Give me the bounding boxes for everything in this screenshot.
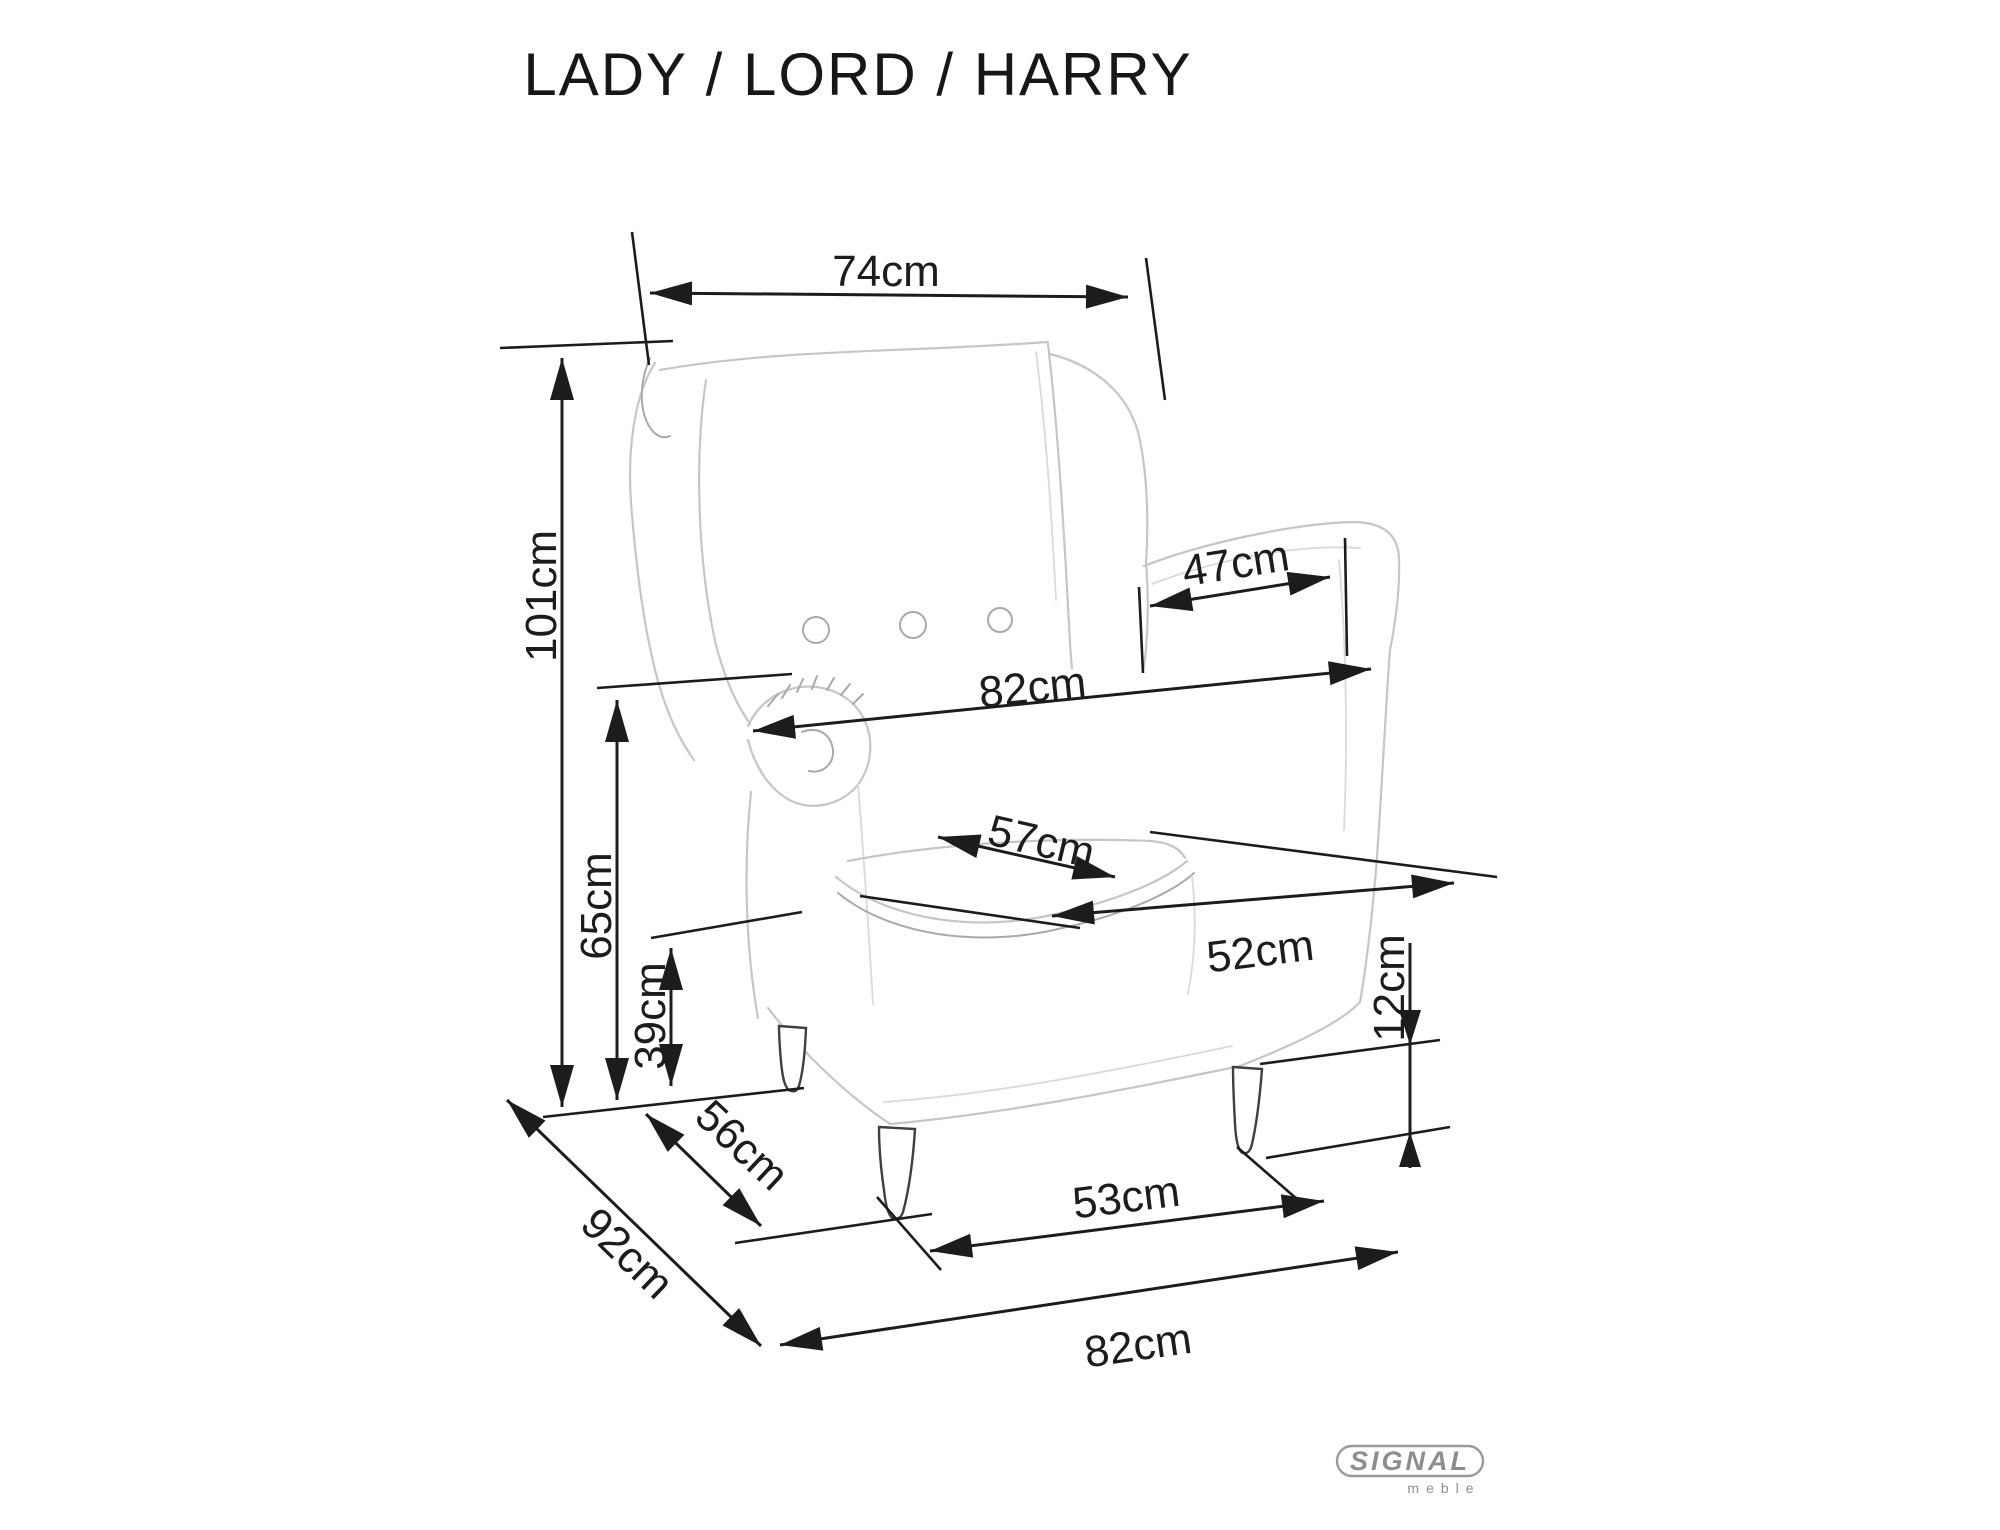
dim-base-front-width: 82cm — [780, 1252, 1398, 1377]
tufting-button — [803, 617, 829, 643]
dim-label-front-leg-span: 53cm — [1070, 1167, 1183, 1229]
furniture-dimension-sheet: 74cm 101cm 65cm 39cm 56cm — [0, 0, 2000, 1530]
dimension-diagram: 74cm 101cm 65cm 39cm 56cm — [0, 0, 2000, 1530]
dim-seat-height: 39cm — [626, 912, 802, 1086]
ground-line-left — [543, 1088, 804, 1117]
dim-base-side-depth: 56cm — [646, 1091, 798, 1226]
armchair-sketch — [630, 342, 1399, 1218]
ref-line-seat-right — [1150, 832, 1497, 877]
logo-brand-text: SIGNAL — [1350, 1446, 1470, 1476]
dim-arm-depth: 47cm — [1139, 531, 1347, 673]
chair-seat-cushion — [836, 840, 1195, 994]
chair-left-arm — [747, 676, 873, 1018]
dim-label-armrest-height: 65cm — [572, 852, 621, 960]
dim-label-seat-height: 39cm — [626, 962, 675, 1070]
dim-label-leg-height: 12cm — [1365, 934, 1414, 1042]
page-title: LADY / LORD / HARRY — [523, 41, 1192, 108]
dim-arm-span-width: 82cm — [753, 658, 1371, 731]
ref-line-frame-bottom — [1260, 1040, 1440, 1064]
dim-label-seat-width: 52cm — [1204, 921, 1317, 983]
dim-label-overall-height: 101cm — [517, 530, 566, 662]
tufting-button — [988, 608, 1012, 632]
chair-leg-front-right — [1233, 1067, 1262, 1153]
brand-logo: SIGNAL meble — [1337, 1446, 1483, 1496]
dimension-lines: 74cm 101cm 65cm 39cm 56cm — [500, 232, 1497, 1377]
dim-label-top-width: 74cm — [832, 247, 940, 296]
dim-label-seat-depth: 57cm — [983, 806, 1099, 878]
dim-label-arm-span-width: 82cm — [976, 658, 1088, 718]
ground-line-front — [735, 1214, 932, 1243]
dim-label-base-side-depth: 56cm — [686, 1091, 798, 1200]
dim-armrest-height: 65cm — [572, 674, 792, 1100]
ref-line-floor-right — [1266, 1127, 1450, 1158]
dim-label-base-front-width: 82cm — [1081, 1314, 1194, 1377]
dim-top-width: 74cm — [632, 232, 1165, 400]
chair-leg-rear-left — [779, 1026, 806, 1091]
dim-front-leg-span: 53cm — [877, 1147, 1324, 1270]
tufting-button — [900, 612, 926, 638]
dim-seat-depth: 57cm — [938, 806, 1115, 878]
logo-sub-text: meble — [1407, 1480, 1480, 1496]
